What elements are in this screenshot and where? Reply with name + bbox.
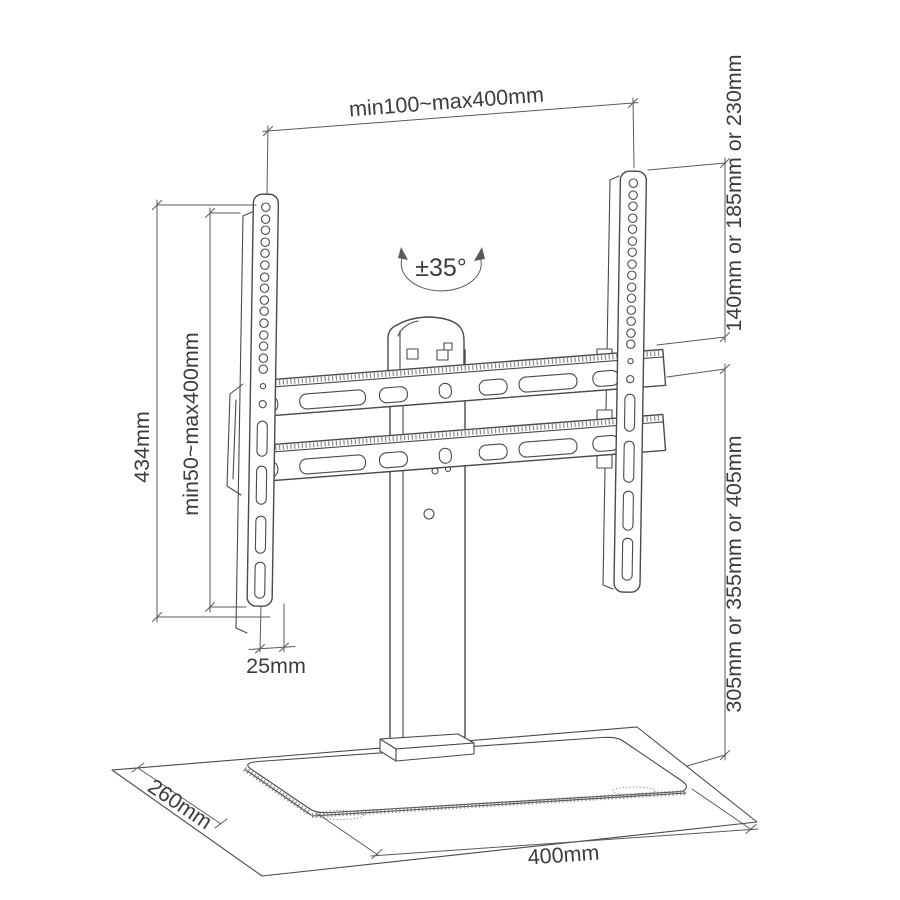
swivel-angle-label: ±35°: [415, 254, 467, 282]
dim-plate-offset-label: 25mm: [246, 654, 306, 678]
dim-upper-height-label: 140mm or 185mm or 230mm: [722, 54, 746, 331]
dim-total-height-label: 434mm: [130, 411, 154, 483]
mount-head: [388, 317, 464, 372]
pedestal-column: [390, 350, 465, 742]
tv-stand-dimension-drawing: min100~max400mm ±35° 140mm or 185mm or 2…: [0, 0, 900, 900]
dim-vesa-range-label: min50~max400mm: [179, 332, 203, 515]
dim-base-width-label: 400mm: [527, 841, 600, 870]
dim-lower-height-label: 305mm or 355mm or 405mm: [722, 435, 746, 712]
dimension-drawing-page: min100~max400mm ±35° 140mm or 185mm or 2…: [0, 0, 900, 900]
